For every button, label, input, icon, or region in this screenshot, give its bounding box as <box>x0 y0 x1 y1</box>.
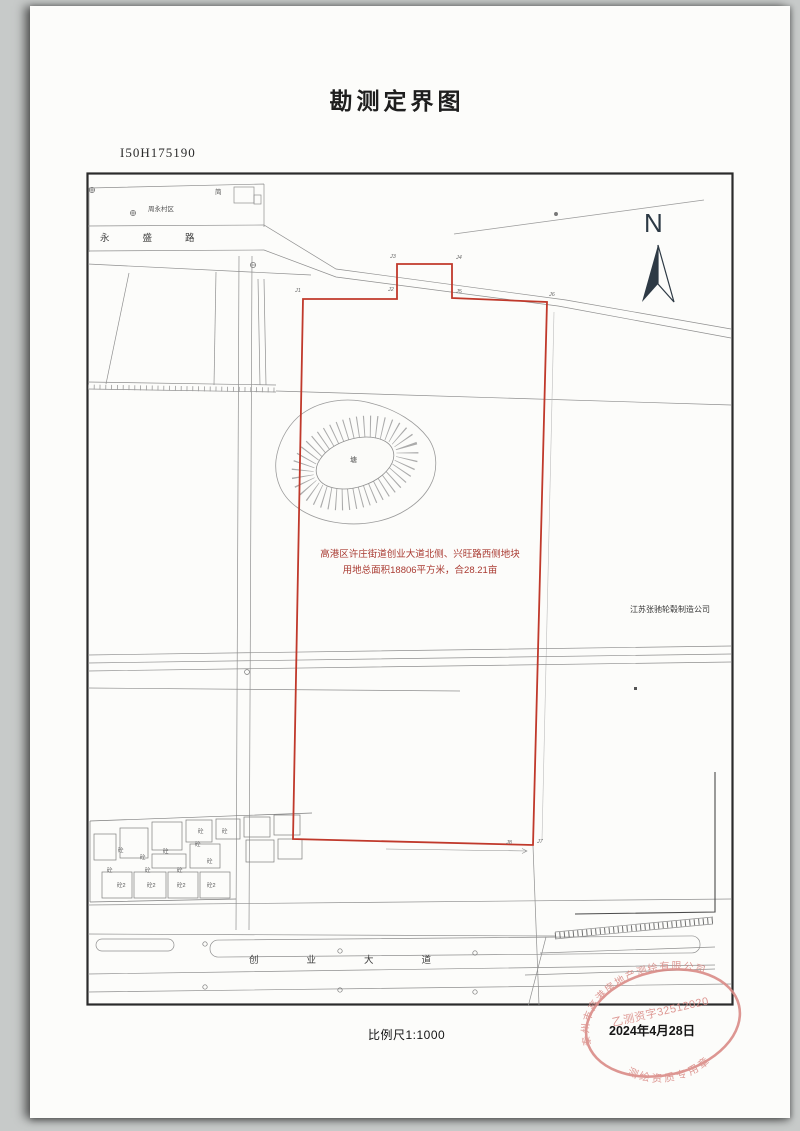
adjacent-company-label: 江苏张驰轮毂制造公司 <box>630 606 710 614</box>
material-label: 砼 <box>140 856 146 862</box>
material-label-2story: 砼2 <box>177 884 186 890</box>
material-label: 砼 <box>107 869 113 875</box>
building-note-label: 简 <box>215 190 222 197</box>
surveying-qualification-seal: 泰州市高港房地产测绘有限公司 乙测资字32512020 测绘资质专用章 <box>573 953 753 1093</box>
boundary-point-j3: J3 <box>390 255 396 261</box>
boundary-point-j6: J6 <box>549 293 555 299</box>
plot-description-line2: 用地总面积18806平方米，合28.21亩 <box>240 566 600 576</box>
material-label: 砼 <box>145 869 151 875</box>
material-label: 砼 <box>222 830 228 836</box>
material-label: 砼 <box>118 849 124 855</box>
boundary-point-j8: J8 <box>506 841 512 847</box>
plot-description-line1: 高港区许庄街道创业大道北侧、兴旺路西侧地块 <box>240 550 600 560</box>
material-label: 砼 <box>177 869 183 875</box>
boundary-point-j4: J4 <box>456 256 462 262</box>
doc-number: I50H175190 <box>120 146 196 159</box>
north-label: N <box>644 210 663 236</box>
scale-label: 比例尺1:1000 <box>368 1029 445 1041</box>
svg-text:测绘资质专用章: 测绘资质专用章 <box>623 1047 716 1093</box>
embankment-hatching <box>555 921 713 936</box>
east-parcel-boundary <box>575 772 715 914</box>
boundary-point-j5: J5 <box>456 290 462 296</box>
village-block-label: 周永村区 <box>148 207 174 214</box>
boundary-point-j1: J1 <box>295 289 301 295</box>
utility-symbols <box>89 187 637 994</box>
road-label-yongsheng: 永盛路 <box>100 234 228 244</box>
material-label-2story: 砼2 <box>207 884 216 890</box>
survey-date: 2024年4月28日 <box>609 1025 695 1038</box>
road-label-chuangye: 创业大道 <box>249 956 479 966</box>
boundary-point-j2: J2 <box>388 288 394 294</box>
material-label: 砼 <box>207 860 213 866</box>
pond-label: 塘 <box>350 457 357 464</box>
map-frame-border <box>88 174 733 1005</box>
north-arrow-icon <box>642 245 674 302</box>
page-title: 勘测定界图 <box>247 90 547 113</box>
survey-map <box>86 172 734 1006</box>
material-label: 砼 <box>198 830 204 836</box>
material-label-2story: 砼2 <box>117 884 126 890</box>
material-label: 砼 <box>195 843 201 849</box>
boundary-point-j7: J7 <box>537 840 543 846</box>
seal-type-arc: 测绘资质专用章 <box>623 1047 716 1093</box>
material-label: 砼 <box>163 850 169 856</box>
material-label-2story: 砼2 <box>147 884 156 890</box>
